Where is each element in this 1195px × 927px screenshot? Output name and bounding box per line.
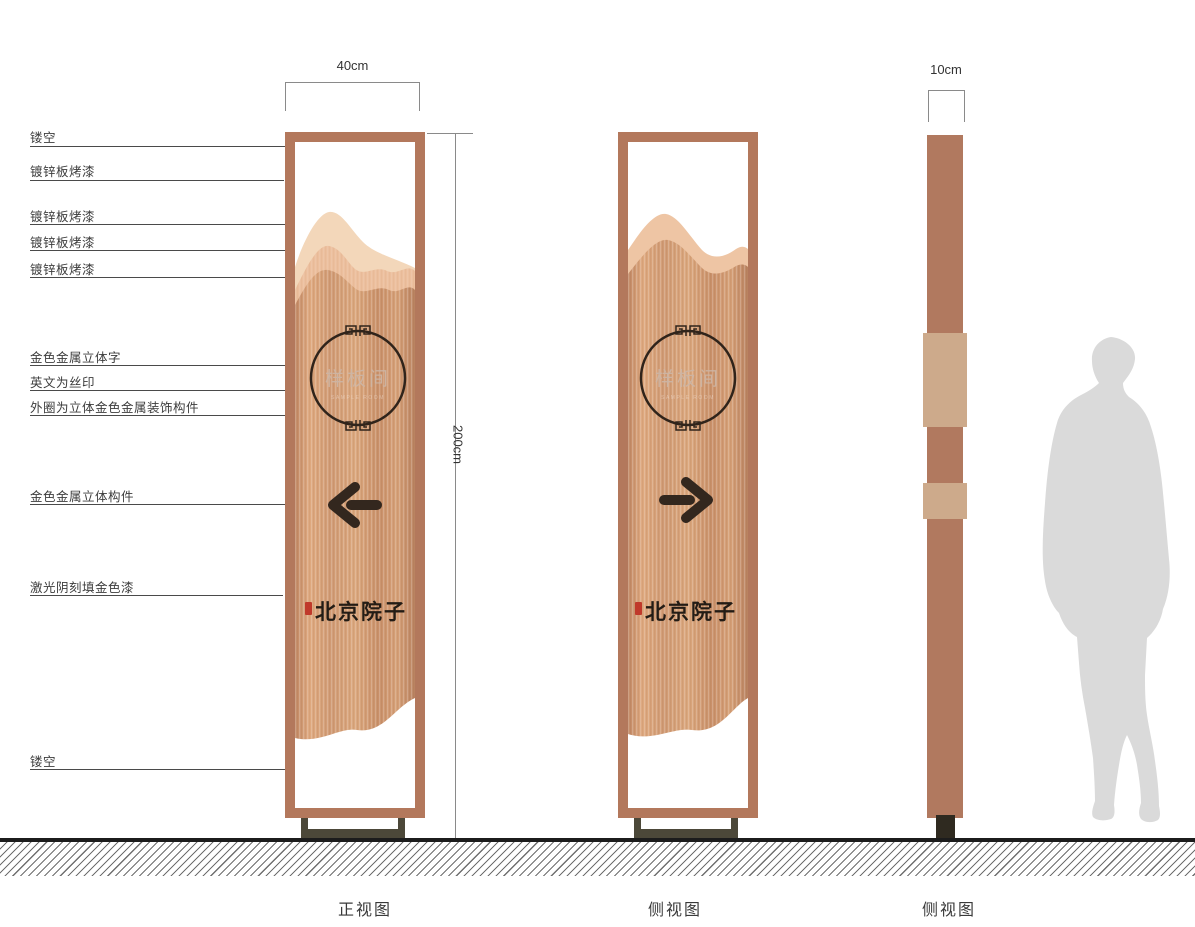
callout-label: 镂空 [30,127,56,146]
leader-line [30,595,283,596]
leader-line [30,180,284,181]
callout-label: 金色金属立体构件 [30,486,134,505]
leader-line [30,146,307,147]
callout-label: 镂空 [30,751,56,770]
side-view-panel: 样板间 SAMPLE ROOM 北京院子 [618,132,758,818]
callout-label: 镀锌板烤漆 [30,161,95,180]
callout-label: 英文为丝印 [30,372,95,391]
room-name-en-text: SAMPLE ROOM [661,395,715,401]
dim-line-height [455,133,456,839]
side-profile-base-block [936,815,955,840]
callout-label: 外圈为立体金色金属装饰构件 [30,397,199,416]
dim-label-front-width: 40cm [285,58,420,73]
brand-logo-text: 北京院子 [315,599,407,624]
dim-label-side-depth: 10cm [925,62,967,77]
callout-label: 激光阴刻填金色漆 [30,577,134,596]
dim-tick-height-top [427,133,473,134]
callout-label: 镀锌板烤漆 [30,259,95,278]
brand-logo-text: 北京院子 [645,599,737,624]
person-silhouette [1035,333,1185,838]
callout-label: 镀锌板烤漆 [30,206,95,225]
dim-bracket-side-depth [928,90,965,122]
front-panel-artwork: 样板间 SAMPLE ROOM 北京院子 [295,142,415,808]
leader-line [30,250,291,251]
side-profile-joint-tab [923,483,967,519]
front-view-panel: 样板间 SAMPLE ROOM 北京院子 [285,132,425,818]
leader-line [30,415,316,416]
seal-icon [635,602,642,615]
side-panel-artwork: 样板间 SAMPLE ROOM 北京院子 [628,142,748,808]
callout-label: 金色金属立体字 [30,347,121,366]
side-profile-column [927,135,963,818]
brand-logo: 北京院子 [305,599,407,624]
drawing-canvas: 镂空 镀锌板烤漆 镀锌板烤漆 镀锌板烤漆 镀锌板烤漆 金色金属立体字 英文为丝印… [0,0,1195,927]
brand-logo: 北京院子 [635,599,737,624]
leader-line [30,224,292,225]
side-profile-joint-tab [923,333,967,427]
dim-label-height: 200cm [451,416,466,474]
view-caption-side2: 侧视图 [922,896,976,920]
room-name-text: 样板间 [655,368,721,390]
leader-line [30,769,302,770]
room-name-en-text: SAMPLE ROOM [331,395,385,401]
callout-label: 镀锌板烤漆 [30,232,95,251]
dim-bracket-front-width [285,82,420,111]
leader-line [30,277,291,278]
ground-hatch [0,842,1195,876]
room-name-text: 样板间 [325,368,391,390]
view-caption-front: 正视图 [338,896,392,920]
view-caption-side1: 侧视图 [648,896,702,920]
seal-icon [305,602,312,615]
